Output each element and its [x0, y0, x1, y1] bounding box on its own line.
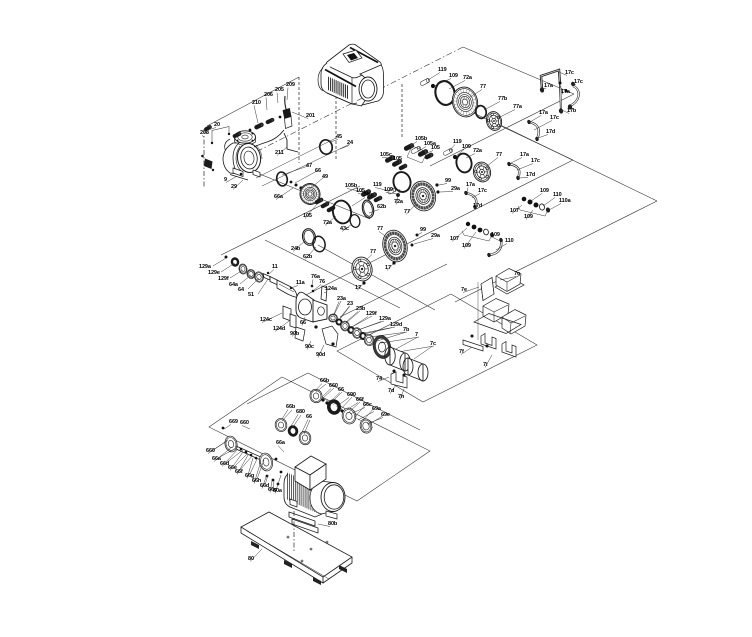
svg-text:109: 109: [462, 243, 471, 249]
svg-text:66: 66: [300, 320, 306, 326]
svg-text:660: 660: [329, 383, 338, 389]
svg-text:43c: 43c: [340, 226, 349, 232]
svg-text:24b: 24b: [291, 246, 301, 252]
svg-text:105: 105: [431, 145, 440, 151]
svg-text:17: 17: [355, 285, 361, 291]
svg-text:110: 110: [505, 238, 514, 244]
svg-text:7: 7: [415, 332, 418, 338]
svg-text:66: 66: [315, 168, 321, 174]
svg-text:17b: 17b: [567, 108, 577, 114]
svg-text:209: 209: [286, 82, 295, 88]
svg-text:72a: 72a: [394, 199, 404, 205]
svg-text:660: 660: [206, 448, 215, 454]
svg-text:17c: 17c: [550, 115, 559, 121]
svg-text:77: 77: [370, 249, 376, 255]
svg-text:23b: 23b: [356, 306, 366, 312]
svg-text:99: 99: [445, 178, 451, 184]
svg-text:17a: 17a: [544, 83, 554, 89]
svg-text:7h: 7h: [398, 394, 405, 400]
svg-text:660: 660: [240, 420, 249, 426]
svg-text:7b: 7b: [403, 327, 410, 333]
svg-text:77: 77: [377, 226, 383, 232]
svg-text:129d: 129d: [390, 322, 402, 328]
svg-text:74: 74: [376, 376, 383, 382]
svg-text:90d: 90d: [316, 352, 325, 358]
svg-text:17d: 17d: [473, 203, 482, 209]
svg-text:7e: 7e: [461, 287, 467, 293]
svg-text:66a: 66a: [274, 194, 284, 200]
svg-text:77b: 77b: [498, 96, 508, 102]
svg-text:80b: 80b: [328, 521, 338, 527]
svg-text:110a: 110a: [559, 198, 572, 204]
svg-text:201: 201: [306, 113, 315, 119]
svg-text:680: 680: [296, 409, 305, 415]
svg-text:17c: 17c: [565, 70, 574, 76]
svg-text:62b: 62b: [377, 204, 387, 210]
svg-text:7o: 7o: [514, 271, 521, 277]
svg-text:208: 208: [200, 130, 209, 136]
svg-text:119: 119: [438, 67, 447, 73]
svg-text:17a: 17a: [561, 89, 571, 95]
svg-text:17c: 17c: [531, 158, 540, 164]
svg-text:109: 109: [462, 144, 471, 150]
svg-text:17: 17: [385, 265, 391, 271]
svg-text:124c: 124c: [260, 317, 272, 323]
svg-text:7i: 7i: [483, 362, 488, 368]
svg-text:17d: 17d: [526, 172, 535, 178]
svg-text:45: 45: [336, 134, 342, 140]
svg-text:72a: 72a: [323, 220, 333, 226]
svg-text:17a: 17a: [466, 182, 476, 188]
svg-text:66c: 66c: [363, 402, 372, 408]
svg-text:77: 77: [496, 152, 502, 158]
svg-text:107: 107: [450, 236, 459, 242]
svg-text:7c: 7c: [430, 341, 436, 347]
svg-text:205: 205: [275, 87, 284, 93]
svg-text:62b: 62b: [303, 254, 313, 260]
svg-text:90b: 90b: [290, 331, 300, 337]
svg-text:72a: 72a: [463, 75, 473, 81]
svg-text:129f: 129f: [366, 311, 377, 317]
svg-text:9: 9: [224, 177, 227, 183]
svg-text:669: 669: [229, 419, 238, 425]
svg-text:17d: 17d: [546, 129, 555, 135]
svg-text:107: 107: [510, 208, 519, 214]
svg-text:210: 210: [252, 100, 261, 106]
svg-text:7f: 7f: [459, 349, 464, 355]
svg-text:90c: 90c: [305, 344, 314, 350]
svg-text:20: 20: [214, 122, 220, 128]
svg-text:72a: 72a: [473, 148, 483, 154]
svg-text:211: 211: [275, 150, 284, 156]
svg-text:77: 77: [404, 209, 410, 215]
svg-text:64: 64: [238, 287, 245, 293]
svg-text:49: 49: [322, 174, 328, 180]
svg-text:66a: 66a: [276, 440, 286, 446]
svg-text:29a: 29a: [451, 186, 461, 192]
svg-text:11a: 11a: [296, 280, 306, 286]
svg-text:109: 109: [384, 187, 393, 193]
svg-text:17c: 17c: [478, 188, 487, 194]
svg-text:66b: 66b: [286, 404, 296, 410]
svg-text:99: 99: [420, 227, 426, 233]
svg-text:105: 105: [393, 156, 402, 162]
svg-text:109: 109: [449, 73, 458, 79]
svg-text:76: 76: [319, 279, 325, 285]
svg-text:105: 105: [356, 188, 365, 194]
svg-text:109: 109: [524, 214, 533, 220]
svg-text:47: 47: [306, 163, 312, 169]
svg-text:66: 66: [306, 414, 312, 420]
svg-text:23a: 23a: [337, 296, 347, 302]
svg-text:119: 119: [373, 182, 382, 188]
svg-text:80a: 80a: [273, 488, 283, 494]
svg-text:66: 66: [338, 387, 344, 393]
svg-text:124d: 124d: [273, 326, 285, 332]
svg-text:7d: 7d: [388, 388, 394, 394]
svg-text:77: 77: [480, 84, 486, 90]
svg-text:51: 51: [248, 292, 254, 298]
svg-text:77a: 77a: [513, 104, 523, 110]
svg-text:17a: 17a: [520, 152, 530, 158]
svg-text:23: 23: [347, 301, 353, 307]
svg-text:124a: 124a: [325, 286, 338, 292]
svg-text:17a: 17a: [539, 110, 549, 116]
svg-text:17c: 17c: [574, 79, 583, 85]
svg-text:29: 29: [231, 184, 237, 190]
svg-text:109: 109: [491, 232, 500, 238]
svg-text:69e: 69e: [381, 412, 390, 418]
svg-text:11: 11: [272, 264, 278, 270]
svg-text:105c: 105c: [380, 152, 392, 158]
svg-text:105: 105: [303, 213, 312, 219]
svg-text:129f: 129f: [218, 276, 229, 282]
svg-text:80: 80: [248, 556, 254, 562]
svg-text:66f: 66f: [235, 469, 243, 475]
svg-text:109: 109: [540, 188, 549, 194]
svg-text:24: 24: [347, 140, 354, 146]
svg-text:690: 690: [347, 392, 356, 398]
svg-text:206: 206: [264, 92, 273, 98]
svg-text:29a: 29a: [431, 233, 441, 239]
svg-text:119: 119: [453, 139, 462, 145]
